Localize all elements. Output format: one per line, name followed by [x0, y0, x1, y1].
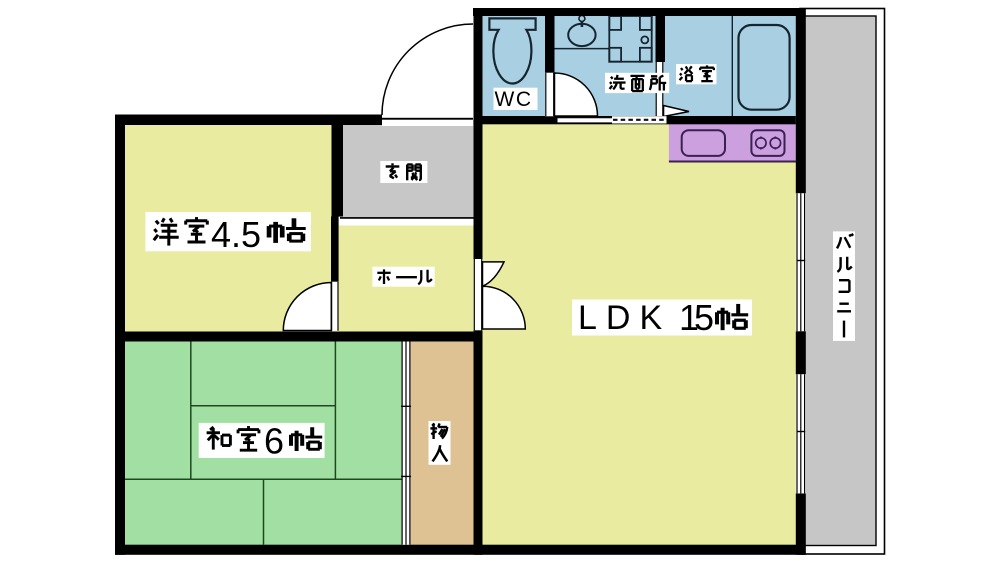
svg-text:LDK: LDK	[578, 299, 671, 337]
svg-text:6: 6	[264, 421, 284, 462]
svg-text:4.5: 4.5	[211, 214, 261, 255]
svg-text:WC: WC	[495, 88, 533, 111]
svg-text:15: 15	[679, 297, 713, 338]
